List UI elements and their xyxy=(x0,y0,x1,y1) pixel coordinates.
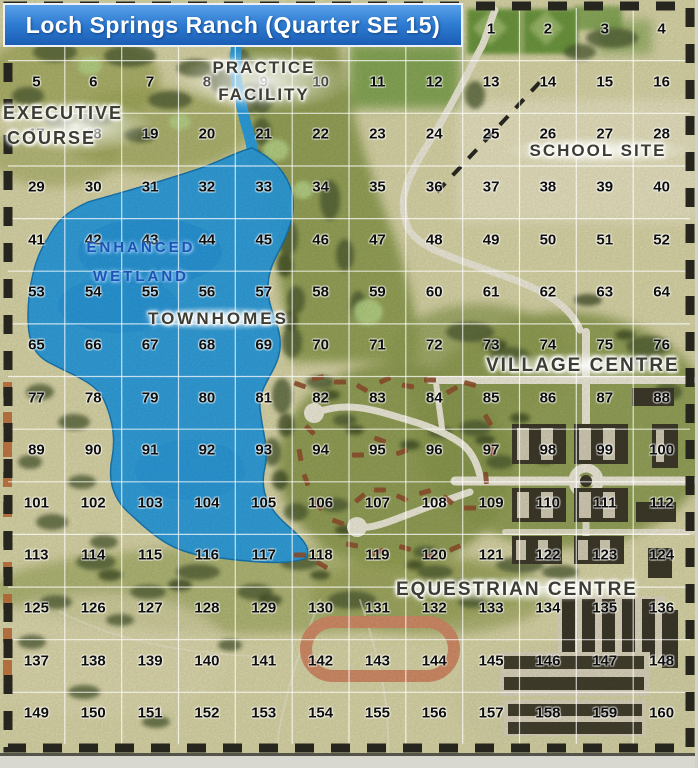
lot-62[interactable]: 62 xyxy=(540,285,557,300)
lot-91[interactable]: 91 xyxy=(142,443,159,458)
lot-15[interactable]: 15 xyxy=(596,74,613,89)
lot-57[interactable]: 57 xyxy=(255,285,272,300)
lot-157[interactable]: 157 xyxy=(479,706,504,721)
lot-39[interactable]: 39 xyxy=(596,179,613,194)
lot-154[interactable]: 154 xyxy=(308,706,333,721)
lot-118[interactable]: 118 xyxy=(308,548,332,563)
lot-53[interactable]: 53 xyxy=(28,285,45,300)
lot-71[interactable]: 71 xyxy=(369,337,386,352)
lot-114[interactable]: 114 xyxy=(81,548,105,563)
lot-146[interactable]: 146 xyxy=(535,653,560,668)
lot-51[interactable]: 51 xyxy=(596,232,613,247)
lot-97[interactable]: 97 xyxy=(483,443,500,458)
lot-2[interactable]: 2 xyxy=(544,22,552,37)
lot-47[interactable]: 47 xyxy=(369,232,386,247)
lot-101[interactable]: 101 xyxy=(24,495,49,510)
lot-29[interactable]: 29 xyxy=(28,179,45,194)
lot-14[interactable]: 14 xyxy=(540,74,557,89)
lot-112[interactable]: 112 xyxy=(649,495,673,510)
lot-116[interactable]: 116 xyxy=(195,548,219,563)
lot-96[interactable]: 96 xyxy=(426,443,443,458)
lot-147[interactable]: 147 xyxy=(592,653,617,668)
lot-5[interactable]: 5 xyxy=(32,74,40,89)
lot-130[interactable]: 130 xyxy=(308,601,333,616)
lot-85[interactable]: 85 xyxy=(483,390,500,405)
label-townhomes: TOWNHOMES xyxy=(142,306,295,331)
lot-141[interactable]: 141 xyxy=(251,653,276,668)
lot-38[interactable]: 38 xyxy=(540,179,557,194)
lot-82[interactable]: 82 xyxy=(312,390,329,405)
label-equestrian-centre: EQUESTRIAN CENTRE xyxy=(390,576,644,603)
lot-110[interactable]: 110 xyxy=(536,495,560,510)
lot-138[interactable]: 138 xyxy=(81,653,106,668)
label-village-centre: VILLAGE CENTRE xyxy=(482,352,684,379)
lot-156[interactable]: 156 xyxy=(422,706,447,721)
lot-4[interactable]: 4 xyxy=(657,22,665,37)
lot-81[interactable]: 81 xyxy=(255,390,272,405)
lot-45[interactable]: 45 xyxy=(255,232,272,247)
lot-61[interactable]: 61 xyxy=(483,285,500,300)
lot-50[interactable]: 50 xyxy=(540,232,557,247)
lot-16[interactable]: 16 xyxy=(653,74,670,89)
lot-140[interactable]: 140 xyxy=(194,653,219,668)
enhanced-wetland-line1: ENHANCED xyxy=(66,233,216,262)
lot-113[interactable]: 113 xyxy=(24,548,48,563)
lot-92[interactable]: 92 xyxy=(199,443,216,458)
lot-142[interactable]: 142 xyxy=(308,653,333,668)
lot-63[interactable]: 63 xyxy=(596,285,613,300)
lot-129[interactable]: 129 xyxy=(251,601,276,616)
lot-94[interactable]: 94 xyxy=(312,443,329,458)
label-practice-facility: PRACTICE FACILITY xyxy=(178,50,350,112)
label-enhanced-wetland: ENHANCED WETLAND xyxy=(66,233,216,291)
lot-64[interactable]: 64 xyxy=(653,285,670,300)
lot-151[interactable]: 151 xyxy=(138,706,163,721)
lot-150[interactable]: 150 xyxy=(81,706,106,721)
lot-13[interactable]: 13 xyxy=(483,74,500,89)
lot-117[interactable]: 117 xyxy=(252,548,276,563)
lot-67[interactable]: 67 xyxy=(142,337,159,352)
lot-49[interactable]: 49 xyxy=(483,232,500,247)
lot-83[interactable]: 83 xyxy=(369,390,386,405)
lot-73[interactable]: 73 xyxy=(483,337,500,352)
lot-78[interactable]: 78 xyxy=(85,390,102,405)
lot-89[interactable]: 89 xyxy=(28,443,45,458)
lot-60[interactable]: 60 xyxy=(426,285,443,300)
lot-87[interactable]: 87 xyxy=(596,390,613,405)
lot-144[interactable]: 144 xyxy=(422,653,447,668)
lot-79[interactable]: 79 xyxy=(142,390,159,405)
lot-70[interactable]: 70 xyxy=(312,337,329,352)
lot-20[interactable]: 20 xyxy=(199,127,216,142)
lot-136[interactable]: 136 xyxy=(649,601,674,616)
lot-65[interactable]: 65 xyxy=(28,337,45,352)
lot-120[interactable]: 120 xyxy=(422,548,447,563)
lot-160[interactable]: 160 xyxy=(649,706,674,721)
label-executive-course: EXECUTIVE COURSE xyxy=(0,98,153,154)
map-edge-strip xyxy=(0,756,698,768)
lot-76[interactable]: 76 xyxy=(653,337,670,352)
lot-100[interactable]: 100 xyxy=(649,443,674,458)
lot-107[interactable]: 107 xyxy=(365,495,390,510)
lot-24[interactable]: 24 xyxy=(426,127,443,142)
lot-159[interactable]: 159 xyxy=(592,706,617,721)
lot-104[interactable]: 104 xyxy=(194,495,219,510)
lot-155[interactable]: 155 xyxy=(365,706,390,721)
map-title: Loch Springs Ranch (Quarter SE 15) xyxy=(26,12,440,39)
lot-148[interactable]: 148 xyxy=(649,653,674,668)
lot-84[interactable]: 84 xyxy=(426,390,443,405)
lot-35[interactable]: 35 xyxy=(369,179,386,194)
executive-course-line2: COURSE xyxy=(3,126,153,151)
lot-153[interactable]: 153 xyxy=(251,706,276,721)
lot-93[interactable]: 93 xyxy=(255,443,272,458)
lot-23[interactable]: 23 xyxy=(369,127,386,142)
lot-119[interactable]: 119 xyxy=(365,548,389,563)
lot-145[interactable]: 145 xyxy=(479,653,504,668)
lot-21[interactable]: 21 xyxy=(255,127,272,142)
lot-115[interactable]: 115 xyxy=(138,548,162,563)
lot-152[interactable]: 152 xyxy=(194,706,219,721)
lot-99[interactable]: 99 xyxy=(596,443,613,458)
lot-109[interactable]: 109 xyxy=(479,495,504,510)
lot-22[interactable]: 22 xyxy=(312,127,329,142)
lot-95[interactable]: 95 xyxy=(369,443,386,458)
lot-74[interactable]: 74 xyxy=(540,337,557,352)
lot-125[interactable]: 125 xyxy=(24,601,49,616)
lot-143[interactable]: 143 xyxy=(365,653,390,668)
lot-34[interactable]: 34 xyxy=(312,179,329,194)
lot-111[interactable]: 111 xyxy=(593,495,616,510)
lot-11[interactable]: 11 xyxy=(369,74,385,89)
lot-58[interactable]: 58 xyxy=(312,285,329,300)
lot-122[interactable]: 122 xyxy=(535,548,560,563)
lot-88[interactable]: 88 xyxy=(653,390,670,405)
lot-121[interactable]: 121 xyxy=(479,548,504,563)
lot-75[interactable]: 75 xyxy=(596,337,613,352)
lot-139[interactable]: 139 xyxy=(138,653,163,668)
lot-80[interactable]: 80 xyxy=(199,390,216,405)
lot-68[interactable]: 68 xyxy=(199,337,216,352)
lot-149[interactable]: 149 xyxy=(24,706,49,721)
lot-90[interactable]: 90 xyxy=(85,443,102,458)
lot-1[interactable]: 1 xyxy=(487,22,495,37)
lot-40[interactable]: 40 xyxy=(653,179,670,194)
lot-59[interactable]: 59 xyxy=(369,285,386,300)
lot-30[interactable]: 30 xyxy=(85,179,102,194)
map-title-bar: Loch Springs Ranch (Quarter SE 15) xyxy=(3,3,463,47)
lot-103[interactable]: 103 xyxy=(138,495,163,510)
lot-126[interactable]: 126 xyxy=(81,601,106,616)
lot-106[interactable]: 106 xyxy=(308,495,333,510)
lot-128[interactable]: 128 xyxy=(194,601,219,616)
lot-72[interactable]: 72 xyxy=(426,337,443,352)
lot-32[interactable]: 32 xyxy=(199,179,216,194)
lot-102[interactable]: 102 xyxy=(81,495,106,510)
lot-124[interactable]: 124 xyxy=(649,548,674,563)
lot-48[interactable]: 48 xyxy=(426,232,443,247)
lot-52[interactable]: 52 xyxy=(653,232,670,247)
lot-158[interactable]: 158 xyxy=(535,706,560,721)
practice-facility-line1: PRACTICE xyxy=(178,54,350,81)
lot-3[interactable]: 3 xyxy=(601,22,609,37)
practice-facility-line2: FACILITY xyxy=(178,81,350,108)
lot-25[interactable]: 25 xyxy=(483,127,500,142)
lot-41[interactable]: 41 xyxy=(28,232,45,247)
lot-33[interactable]: 33 xyxy=(255,179,272,194)
lot-108[interactable]: 108 xyxy=(422,495,447,510)
lot-77[interactable]: 77 xyxy=(28,390,45,405)
lot-66[interactable]: 66 xyxy=(85,337,102,352)
lot-37[interactable]: 37 xyxy=(483,179,500,194)
lot-127[interactable]: 127 xyxy=(138,601,163,616)
lot-105[interactable]: 105 xyxy=(251,495,276,510)
lot-98[interactable]: 98 xyxy=(540,443,557,458)
executive-course-line1: EXECUTIVE xyxy=(3,101,153,126)
lot-131[interactable]: 131 xyxy=(365,601,390,616)
enhanced-wetland-line2: WETLAND xyxy=(66,262,216,291)
lot-86[interactable]: 86 xyxy=(540,390,557,405)
plat-map: 1234567891011121314151617181920212223242… xyxy=(0,0,698,768)
label-school-site: SCHOOL SITE xyxy=(506,136,690,165)
lot-7[interactable]: 7 xyxy=(146,74,154,89)
lot-46[interactable]: 46 xyxy=(312,232,329,247)
lot-123[interactable]: 123 xyxy=(592,548,617,563)
lot-12[interactable]: 12 xyxy=(426,74,443,89)
lot-31[interactable]: 31 xyxy=(142,179,159,194)
lot-137[interactable]: 137 xyxy=(24,653,49,668)
lot-6[interactable]: 6 xyxy=(89,74,97,89)
lot-36[interactable]: 36 xyxy=(426,179,443,194)
lot-69[interactable]: 69 xyxy=(255,337,272,352)
